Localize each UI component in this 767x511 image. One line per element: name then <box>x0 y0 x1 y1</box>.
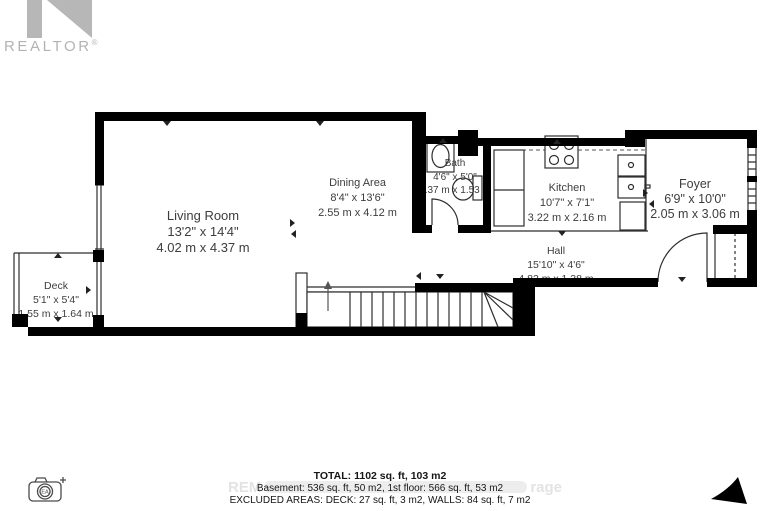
room-name: Hall <box>491 244 621 258</box>
area-summary: TOTAL: 1102 sq. ft, 103 m2 Basement: 536… <box>150 470 610 506</box>
room-dim-metric: 1.37 m x 1.53 m <box>410 184 500 198</box>
foyer-closet <box>715 233 735 278</box>
floor-areas-line: Basement: 536 sq. ft, 50 m2, 1st floor: … <box>150 483 610 495</box>
bath-door-arc <box>432 199 458 225</box>
total-area-line: TOTAL: 1102 sq. ft, 103 m2 <box>150 470 610 483</box>
stove-icon <box>545 136 578 168</box>
room-dim-metric: 4.02 m x 4.37 m <box>138 240 268 256</box>
room-label-kitchen: Kitchen 10'7" x 7'1" 3.22 m x 2.16 m <box>512 181 622 226</box>
room-name: Foyer <box>635 177 755 192</box>
staircase <box>296 273 513 327</box>
room-dim-imperial: 15'10" x 4'6" <box>491 258 621 272</box>
room-label-living-room: Living Room 13'2" x 14'4" 4.02 m x 4.37 … <box>138 208 268 256</box>
room-dim-imperial: 5'1" x 5'4" <box>6 293 106 307</box>
north-arrow-icon <box>705 474 755 508</box>
room-name: Deck <box>6 279 106 293</box>
floor-plan-drawing <box>0 0 767 511</box>
room-name: Dining Area <box>300 176 415 191</box>
camera-badge-label: EA <box>41 490 49 496</box>
room-label-foyer: Foyer 6'9" x 10'0" 2.05 m x 3.06 m <box>635 177 755 222</box>
room-dim-metric: 2.55 m x 4.12 m <box>300 206 415 221</box>
room-dim-metric: 1.55 m x 1.64 m <box>6 307 106 321</box>
room-dim-imperial: 4'6" x 5'0" <box>410 171 500 185</box>
room-dim-imperial: 6'9" x 10'0" <box>635 192 755 207</box>
floor-plan-page: REALTOR® <box>0 0 767 511</box>
room-dim-imperial: 10'7" x 7'1" <box>512 196 622 211</box>
room-label-bath: Bath 4'6" x 5'0" 1.37 m x 1.53 m <box>410 157 500 198</box>
room-dim-imperial: 8'4" x 13'6" <box>300 191 415 206</box>
room-name: Kitchen <box>512 181 622 196</box>
room-dim-imperial: 13'2" x 14'4" <box>138 224 268 240</box>
room-label-deck: Deck 5'1" x 5'4" 1.55 m x 1.64 m <box>6 279 106 321</box>
room-label-dining-area: Dining Area 8'4" x 13'6" 2.55 m x 4.12 m <box>300 176 415 221</box>
room-label-hall: Hall 15'10" x 4'6" 4.82 m x 1.38 m <box>491 244 621 286</box>
room-dim-metric: 4.82 m x 1.38 m <box>491 272 621 286</box>
room-dim-metric: 2.05 m x 3.06 m <box>635 207 755 222</box>
room-dim-metric: 3.22 m x 2.16 m <box>512 211 622 226</box>
excluded-areas-line: EXCLUDED AREAS: DECK: 27 sq. ft, 3 m2, W… <box>150 495 610 507</box>
entry-door-arc <box>658 233 707 282</box>
camera-icon: EA <box>26 474 70 506</box>
room-name: Living Room <box>138 208 268 224</box>
room-name: Bath <box>410 157 500 171</box>
